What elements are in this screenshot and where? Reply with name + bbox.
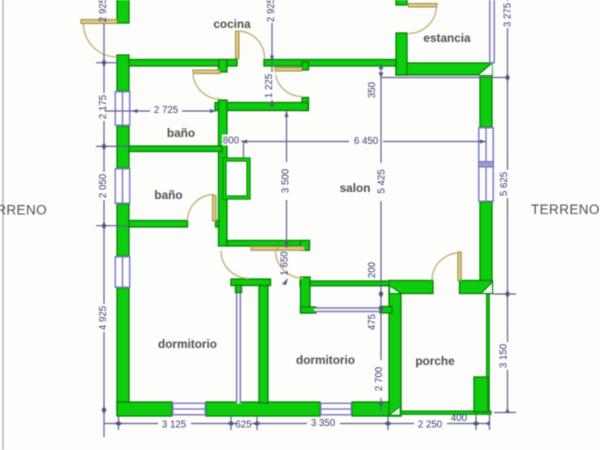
svg-text:baño: baño xyxy=(167,126,195,140)
svg-text:3 500: 3 500 xyxy=(281,168,292,193)
svg-text:2 725: 2 725 xyxy=(154,105,178,116)
svg-text:TERRENO: TERRENO xyxy=(0,203,47,218)
svg-text:1 650: 1 650 xyxy=(280,251,291,276)
svg-text:dormitorio: dormitorio xyxy=(158,337,217,351)
svg-text:3 350: 3 350 xyxy=(311,418,336,429)
svg-text:4 925: 4 925 xyxy=(98,306,109,330)
svg-text:1 225: 1 225 xyxy=(264,74,275,98)
svg-text:5 425: 5 425 xyxy=(377,169,388,193)
svg-text:6 450: 6 450 xyxy=(354,136,379,147)
svg-text:3 125: 3 125 xyxy=(162,420,186,431)
svg-text:3 150: 3 150 xyxy=(499,343,510,368)
svg-text:estancia: estancia xyxy=(423,31,471,45)
svg-text:2 250: 2 250 xyxy=(418,420,443,431)
svg-text:800: 800 xyxy=(223,136,240,147)
svg-text:350: 350 xyxy=(367,81,378,98)
svg-text:625: 625 xyxy=(235,420,251,431)
svg-text:475: 475 xyxy=(367,314,378,330)
svg-text:2 925: 2 925 xyxy=(98,0,109,22)
svg-text:2 700: 2 700 xyxy=(374,366,385,391)
svg-text:baño: baño xyxy=(154,188,182,202)
svg-text:salon: salon xyxy=(340,181,371,195)
svg-text:200: 200 xyxy=(367,261,378,278)
svg-text:3 275: 3 275 xyxy=(503,3,514,27)
svg-text:dormitorio: dormitorio xyxy=(296,353,355,367)
svg-text:5 625: 5 625 xyxy=(499,172,510,196)
svg-text:2 050: 2 050 xyxy=(98,173,109,198)
svg-text:porche: porche xyxy=(415,354,455,368)
svg-text:TERRENO: TERRENO xyxy=(531,202,600,217)
svg-text:cocina: cocina xyxy=(213,17,251,31)
svg-text:2 925: 2 925 xyxy=(266,0,277,22)
svg-text:2 175: 2 175 xyxy=(98,95,109,119)
svg-text:400: 400 xyxy=(451,413,468,424)
